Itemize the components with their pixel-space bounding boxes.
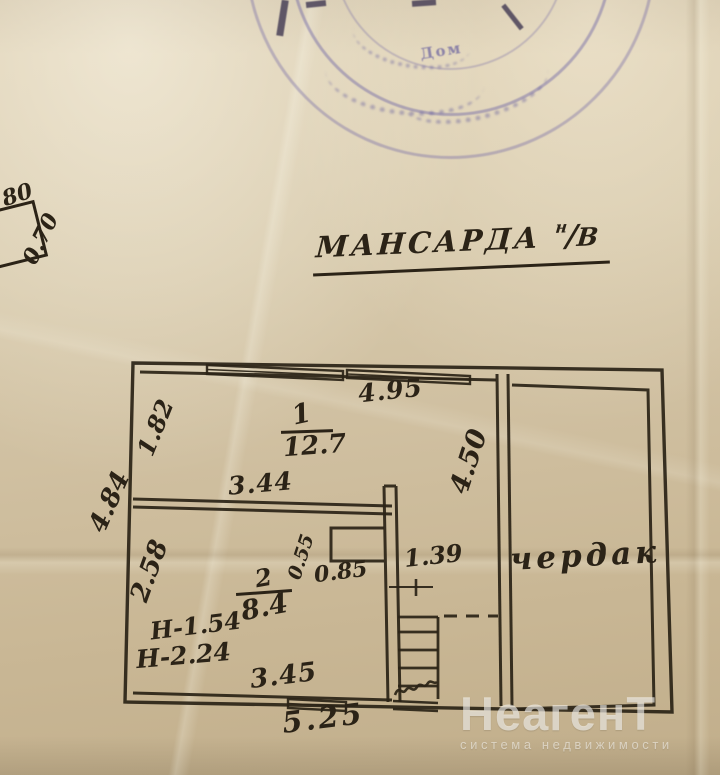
dim-room1-width: 3.44 (227, 466, 294, 501)
stamp-text: Дом (419, 39, 464, 63)
stair-treads (398, 617, 438, 686)
room1-area: 12.7 (282, 429, 347, 463)
room-divider-wall (133, 507, 392, 514)
plan-title-text: МАНСАРДА (315, 220, 542, 264)
scanned-floor-plan-photo: Дом 80 0.70 МАНСАРДАн/В 4.95 1 (0, 0, 720, 775)
ink-mark (276, 0, 289, 36)
watermark-tagline: система недвижимости (460, 737, 673, 752)
ink-mark (306, 0, 327, 8)
stamp-illegible-text-arc (394, 38, 555, 137)
hall-wall (384, 486, 400, 702)
suffix-denominator: В (576, 222, 600, 252)
stamp-illegible-text-arc (322, 32, 489, 123)
room-divider-wall (133, 499, 392, 506)
stamp-outer-circle-icon (245, 0, 656, 159)
attic-partition-wall (508, 374, 512, 706)
ink-mark (501, 4, 523, 31)
plan-title: МАНСАРДАн/В (311, 216, 610, 277)
ink-mark (412, 0, 436, 7)
plan-title-suffix: н/В (553, 216, 600, 255)
stamp-inner-circle-icon (333, 0, 567, 70)
attic-partition-wall (497, 374, 501, 706)
dim-hall-width: 1.39 (403, 538, 464, 573)
